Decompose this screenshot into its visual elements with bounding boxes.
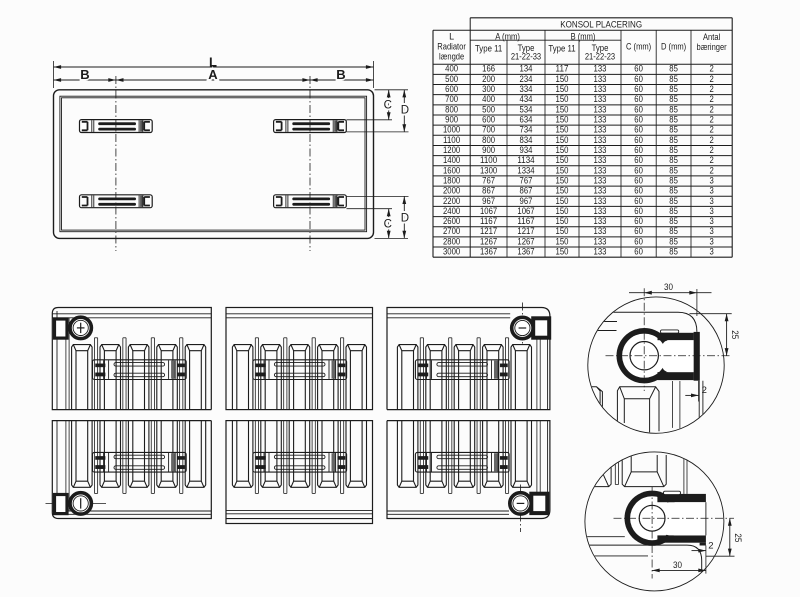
svg-text:1217: 1217 bbox=[517, 226, 534, 236]
svg-text:1067: 1067 bbox=[517, 206, 534, 216]
svg-text:150: 150 bbox=[556, 175, 569, 185]
svg-text:3: 3 bbox=[709, 175, 713, 185]
svg-text:85: 85 bbox=[669, 84, 678, 94]
svg-text:60: 60 bbox=[634, 226, 643, 236]
svg-text:85: 85 bbox=[669, 186, 678, 196]
svg-text:133: 133 bbox=[594, 74, 607, 84]
svg-text:60: 60 bbox=[634, 94, 643, 104]
svg-text:2: 2 bbox=[709, 165, 713, 175]
svg-text:60: 60 bbox=[634, 216, 643, 226]
svg-text:800: 800 bbox=[445, 104, 458, 114]
svg-text:1167: 1167 bbox=[517, 216, 534, 226]
svg-text:60: 60 bbox=[634, 125, 643, 135]
svg-text:85: 85 bbox=[669, 135, 678, 145]
svg-text:133: 133 bbox=[594, 135, 607, 145]
svg-text:900: 900 bbox=[482, 145, 495, 155]
svg-text:1200: 1200 bbox=[443, 145, 460, 155]
svg-text:1400: 1400 bbox=[443, 155, 460, 165]
svg-text:85: 85 bbox=[669, 94, 678, 104]
svg-text:KONSOL PLACERING: KONSOL PLACERING bbox=[560, 20, 642, 30]
svg-text:2: 2 bbox=[709, 94, 713, 104]
svg-text:Radiator: Radiator bbox=[437, 42, 466, 52]
svg-text:133: 133 bbox=[594, 84, 607, 94]
svg-text:85: 85 bbox=[669, 226, 678, 236]
svg-text:150: 150 bbox=[556, 114, 569, 124]
svg-text:150: 150 bbox=[556, 216, 569, 226]
svg-text:1100: 1100 bbox=[480, 155, 497, 165]
svg-text:400: 400 bbox=[482, 94, 495, 104]
svg-text:166: 166 bbox=[482, 64, 495, 74]
svg-text:534: 534 bbox=[520, 104, 533, 114]
svg-text:1134: 1134 bbox=[517, 155, 534, 165]
svg-text:133: 133 bbox=[594, 114, 607, 124]
svg-text:133: 133 bbox=[594, 94, 607, 104]
svg-text:C: C bbox=[384, 219, 392, 231]
svg-text:Type 11: Type 11 bbox=[475, 44, 502, 54]
svg-text:2700: 2700 bbox=[443, 226, 460, 236]
svg-text:25: 25 bbox=[732, 533, 743, 542]
svg-text:133: 133 bbox=[594, 145, 607, 155]
svg-text:334: 334 bbox=[520, 84, 533, 94]
svg-text:1067: 1067 bbox=[480, 206, 497, 216]
svg-text:85: 85 bbox=[669, 104, 678, 114]
svg-text:834: 834 bbox=[520, 135, 533, 145]
svg-text:133: 133 bbox=[594, 104, 607, 114]
svg-text:150: 150 bbox=[556, 84, 569, 94]
svg-text:150: 150 bbox=[556, 135, 569, 145]
svg-text:133: 133 bbox=[594, 165, 607, 175]
svg-text:3: 3 bbox=[709, 247, 713, 257]
svg-text:133: 133 bbox=[594, 247, 607, 257]
svg-text:D: D bbox=[401, 213, 409, 225]
svg-text:85: 85 bbox=[669, 125, 678, 135]
svg-text:700: 700 bbox=[445, 94, 458, 104]
svg-text:133: 133 bbox=[594, 196, 607, 206]
svg-text:60: 60 bbox=[634, 165, 643, 175]
svg-text:3: 3 bbox=[709, 206, 713, 216]
svg-text:3000: 3000 bbox=[443, 247, 460, 257]
svg-text:150: 150 bbox=[556, 74, 569, 84]
svg-text:150: 150 bbox=[556, 196, 569, 206]
svg-text:60: 60 bbox=[634, 236, 643, 246]
svg-text:85: 85 bbox=[669, 114, 678, 124]
svg-text:85: 85 bbox=[669, 236, 678, 246]
svg-text:85: 85 bbox=[669, 74, 678, 84]
svg-text:134: 134 bbox=[520, 64, 533, 74]
svg-text:2: 2 bbox=[709, 74, 713, 84]
svg-text:434: 434 bbox=[520, 94, 533, 104]
svg-text:Type 11: Type 11 bbox=[548, 44, 575, 54]
svg-text:967: 967 bbox=[520, 196, 533, 206]
svg-text:200: 200 bbox=[482, 74, 495, 84]
svg-text:150: 150 bbox=[556, 165, 569, 175]
svg-text:60: 60 bbox=[634, 135, 643, 145]
svg-text:150: 150 bbox=[556, 186, 569, 196]
svg-text:400: 400 bbox=[445, 64, 458, 74]
svg-text:133: 133 bbox=[594, 206, 607, 216]
svg-text:30: 30 bbox=[673, 560, 682, 571]
svg-text:2: 2 bbox=[709, 145, 713, 155]
svg-text:60: 60 bbox=[634, 114, 643, 124]
svg-text:700: 700 bbox=[482, 125, 495, 135]
svg-text:A (mm): A (mm) bbox=[495, 31, 520, 41]
svg-text:133: 133 bbox=[594, 236, 607, 246]
svg-text:867: 867 bbox=[482, 186, 495, 196]
svg-text:85: 85 bbox=[669, 216, 678, 226]
svg-text:1800: 1800 bbox=[443, 175, 460, 185]
svg-text:150: 150 bbox=[556, 94, 569, 104]
svg-text:25: 25 bbox=[729, 330, 740, 339]
svg-text:1267: 1267 bbox=[517, 236, 534, 246]
svg-text:3: 3 bbox=[709, 216, 713, 226]
svg-text:21-22-33: 21-22-33 bbox=[511, 52, 541, 62]
svg-text:3: 3 bbox=[709, 226, 713, 236]
svg-text:1300: 1300 bbox=[480, 165, 497, 175]
svg-text:85: 85 bbox=[669, 145, 678, 155]
svg-text:D (mm): D (mm) bbox=[661, 42, 686, 52]
svg-text:1334: 1334 bbox=[517, 165, 534, 175]
svg-text:1100: 1100 bbox=[443, 135, 460, 145]
svg-text:133: 133 bbox=[594, 216, 607, 226]
svg-text:2: 2 bbox=[709, 104, 713, 114]
svg-text:2: 2 bbox=[709, 125, 713, 135]
svg-text:60: 60 bbox=[634, 247, 643, 257]
svg-text:600: 600 bbox=[482, 114, 495, 124]
svg-text:1167: 1167 bbox=[480, 216, 497, 226]
svg-text:934: 934 bbox=[520, 145, 533, 155]
svg-text:3: 3 bbox=[709, 186, 713, 196]
svg-text:133: 133 bbox=[594, 175, 607, 185]
svg-text:A: A bbox=[208, 67, 218, 82]
svg-text:133: 133 bbox=[594, 64, 607, 74]
svg-text:85: 85 bbox=[669, 247, 678, 257]
svg-text:600: 600 bbox=[445, 84, 458, 94]
svg-text:3: 3 bbox=[709, 236, 713, 246]
svg-text:1367: 1367 bbox=[480, 247, 497, 257]
svg-text:133: 133 bbox=[594, 155, 607, 165]
svg-text:1000: 1000 bbox=[443, 125, 460, 135]
svg-text:767: 767 bbox=[520, 175, 533, 185]
svg-text:1267: 1267 bbox=[480, 236, 497, 246]
svg-text:85: 85 bbox=[669, 175, 678, 185]
svg-text:B: B bbox=[336, 67, 345, 82]
svg-text:Antal: Antal bbox=[703, 32, 720, 42]
svg-text:2: 2 bbox=[708, 540, 713, 551]
svg-text:85: 85 bbox=[669, 155, 678, 165]
svg-text:900: 900 bbox=[445, 114, 458, 124]
svg-text:867: 867 bbox=[520, 186, 533, 196]
svg-text:1367: 1367 bbox=[517, 247, 534, 257]
svg-text:234: 234 bbox=[520, 74, 533, 84]
svg-text:500: 500 bbox=[445, 74, 458, 84]
svg-text:2: 2 bbox=[709, 114, 713, 124]
svg-text:150: 150 bbox=[556, 236, 569, 246]
svg-text:734: 734 bbox=[520, 125, 533, 135]
svg-text:133: 133 bbox=[594, 186, 607, 196]
svg-text:133: 133 bbox=[594, 125, 607, 135]
svg-text:60: 60 bbox=[634, 145, 643, 155]
svg-text:634: 634 bbox=[520, 114, 533, 124]
svg-text:2000: 2000 bbox=[443, 186, 460, 196]
svg-text:1600: 1600 bbox=[443, 165, 460, 175]
svg-text:85: 85 bbox=[669, 206, 678, 216]
svg-text:60: 60 bbox=[634, 155, 643, 165]
svg-text:150: 150 bbox=[556, 247, 569, 257]
svg-text:60: 60 bbox=[634, 196, 643, 206]
svg-text:2: 2 bbox=[709, 155, 713, 165]
svg-text:B (mm): B (mm) bbox=[571, 31, 596, 41]
svg-text:150: 150 bbox=[556, 104, 569, 114]
svg-text:2200: 2200 bbox=[443, 196, 460, 206]
svg-text:1217: 1217 bbox=[480, 226, 497, 236]
svg-text:60: 60 bbox=[634, 206, 643, 216]
svg-text:500: 500 bbox=[482, 104, 495, 114]
svg-text:D: D bbox=[401, 105, 409, 117]
svg-text:C (mm): C (mm) bbox=[626, 42, 651, 52]
svg-text:800: 800 bbox=[482, 135, 495, 145]
svg-text:2: 2 bbox=[709, 64, 713, 74]
svg-text:2: 2 bbox=[702, 385, 707, 396]
svg-text:60: 60 bbox=[634, 84, 643, 94]
svg-text:60: 60 bbox=[634, 64, 643, 74]
svg-text:B: B bbox=[80, 67, 89, 82]
svg-text:60: 60 bbox=[634, 74, 643, 84]
svg-text:60: 60 bbox=[634, 104, 643, 114]
svg-text:30: 30 bbox=[664, 282, 673, 293]
svg-text:2800: 2800 bbox=[443, 236, 460, 246]
svg-text:60: 60 bbox=[634, 186, 643, 196]
svg-text:967: 967 bbox=[482, 196, 495, 206]
svg-text:L: L bbox=[449, 32, 454, 42]
svg-text:117: 117 bbox=[556, 64, 569, 74]
svg-text:2: 2 bbox=[709, 84, 713, 94]
svg-text:bæringer: bæringer bbox=[697, 42, 727, 52]
svg-text:2: 2 bbox=[709, 135, 713, 145]
svg-text:60: 60 bbox=[634, 175, 643, 185]
svg-text:150: 150 bbox=[556, 125, 569, 135]
svg-text:3: 3 bbox=[709, 196, 713, 206]
svg-text:C: C bbox=[384, 100, 392, 112]
svg-text:85: 85 bbox=[669, 165, 678, 175]
svg-text:150: 150 bbox=[556, 206, 569, 216]
svg-text:133: 133 bbox=[594, 226, 607, 236]
svg-text:85: 85 bbox=[669, 64, 678, 74]
svg-text:767: 767 bbox=[482, 175, 495, 185]
svg-text:150: 150 bbox=[556, 155, 569, 165]
svg-text:85: 85 bbox=[669, 196, 678, 206]
svg-text:150: 150 bbox=[556, 145, 569, 155]
svg-text:150: 150 bbox=[556, 226, 569, 236]
svg-text:2400: 2400 bbox=[443, 206, 460, 216]
svg-text:300: 300 bbox=[482, 84, 495, 94]
svg-text:2600: 2600 bbox=[443, 216, 460, 226]
svg-text:længde: længde bbox=[439, 51, 464, 61]
svg-text:21-22-23: 21-22-23 bbox=[585, 52, 615, 62]
